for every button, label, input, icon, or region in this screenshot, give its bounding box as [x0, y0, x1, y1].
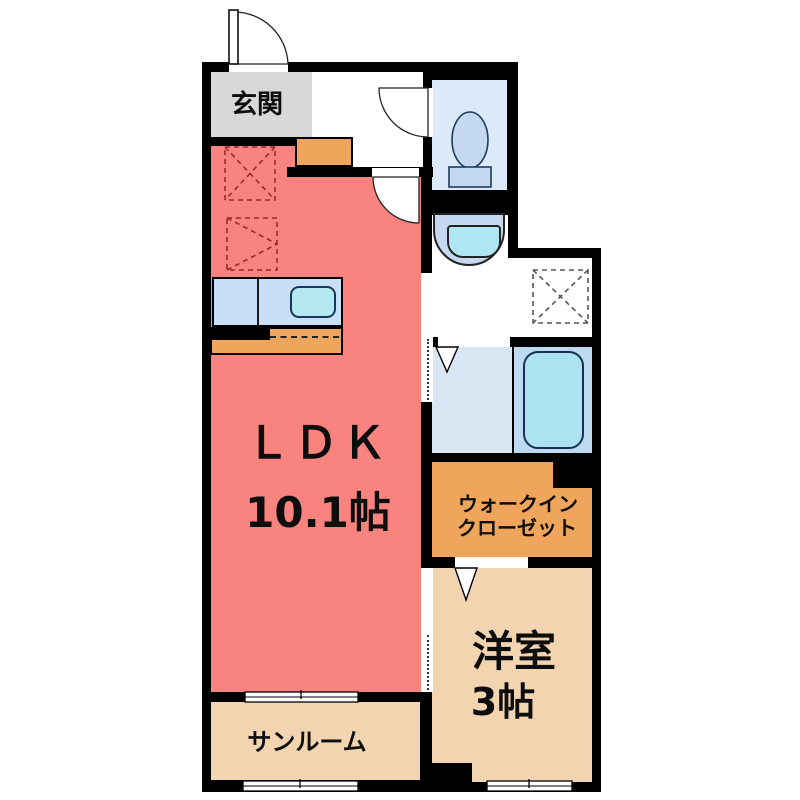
western-room-label: 洋室 — [472, 631, 556, 673]
toilet-door-sill — [423, 88, 433, 137]
sunroom-label: サンルーム — [247, 730, 366, 754]
kitchen-sink — [290, 286, 336, 318]
closet-label-line1: ウォークイン — [458, 494, 578, 514]
closet-door-sill — [455, 557, 528, 568]
entrance-label: 玄関 — [231, 92, 283, 118]
toilet-room — [432, 80, 507, 190]
walk-in-closet-upper — [432, 462, 553, 488]
washbasin-bowl — [447, 225, 501, 258]
bathroom-shower-area — [432, 347, 513, 453]
counter-divider — [257, 279, 259, 325]
entrance-door-sill — [229, 62, 288, 72]
bathroom-tub-area — [513, 347, 592, 453]
ldk-label: ＬＤＫ — [246, 422, 390, 466]
washroom-ext — [508, 258, 592, 337]
washroom-door-sill — [421, 273, 433, 337]
closet-label-line2: クローゼット — [457, 518, 577, 538]
bath-door-sill — [438, 337, 510, 347]
entrance-door-swing — [234, 12, 288, 64]
western-door-pocket — [421, 633, 433, 692]
western-room-lower — [472, 763, 592, 782]
washroom-door-pocket — [421, 337, 433, 402]
kitchen-step-wall — [208, 327, 270, 340]
entrance-door-leaf — [229, 10, 238, 64]
ldk-size-label: 10.1帖 — [245, 492, 391, 534]
shoe-cabinet — [295, 137, 353, 167]
western-door-sill — [421, 568, 433, 633]
kitchen-counter — [212, 277, 343, 327]
hall-door-sill — [372, 168, 419, 177]
counter-dashed-line — [270, 336, 339, 338]
floor-plan: 玄関 ＬＤＫ 10.1帖 ウォークイン クローゼット 洋室 3帖 サンルーム — [0, 0, 800, 800]
western-room-size-label: 3帖 — [471, 683, 535, 721]
entrance-lower-wall — [211, 137, 297, 146]
